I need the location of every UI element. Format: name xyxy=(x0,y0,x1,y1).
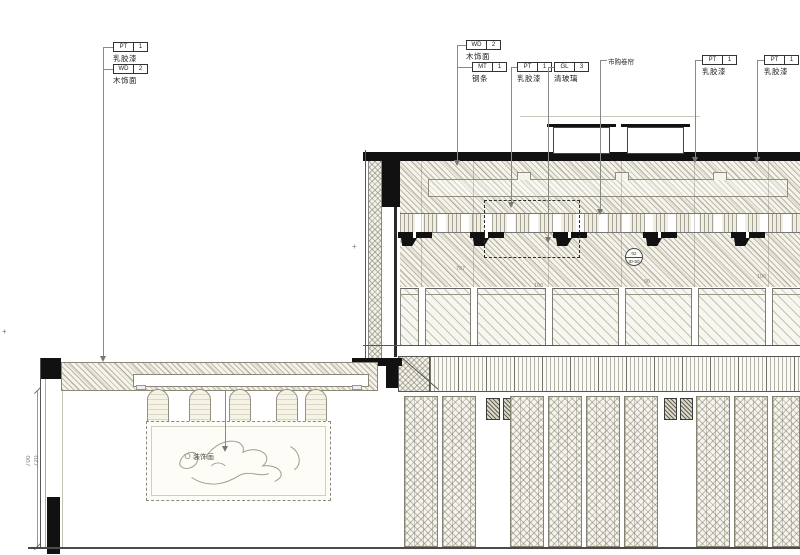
leader-tick xyxy=(757,60,764,61)
downlight-symbol xyxy=(643,232,677,248)
wall-section-strip xyxy=(368,161,382,360)
detail-dashed-box xyxy=(484,200,580,258)
window-mullion xyxy=(470,288,478,345)
screen-gap-box xyxy=(664,398,677,420)
leader-line-right-1 xyxy=(695,60,696,160)
elevation-drawing-canvas: 02 ID-50 xyxy=(0,0,800,555)
corner-mullion-line xyxy=(394,207,397,357)
leader-tick xyxy=(695,60,702,61)
leader-arrow xyxy=(454,160,460,166)
leader-arrow xyxy=(597,209,603,215)
leader-arrow xyxy=(100,356,106,362)
pendant-lamp xyxy=(276,389,298,425)
roof-curb xyxy=(627,127,684,154)
leader-tick xyxy=(600,60,607,61)
callout-pt1-right: PT1 乳胶漆 xyxy=(702,55,737,77)
level-mark-center: + xyxy=(352,243,357,251)
screen-panel xyxy=(548,396,582,547)
screen-gap-box xyxy=(486,398,500,420)
detail-circle-marker: 02 ID-50 xyxy=(625,248,643,266)
leader-line-left-group xyxy=(103,47,104,359)
shelf-end-bracket xyxy=(352,385,362,390)
callout-pt1-right-2: PT1 乳胶漆 xyxy=(764,55,799,77)
window-mullion xyxy=(765,288,773,345)
finish-name: 乳胶漆 xyxy=(702,66,737,77)
artwork-panel xyxy=(146,421,331,501)
recess-notch xyxy=(713,172,727,180)
leader-tick xyxy=(103,47,113,48)
screen-panel xyxy=(442,396,476,547)
mullion-axis-line xyxy=(473,161,474,287)
inline-dimension: 100 xyxy=(534,283,543,289)
leader-tick xyxy=(457,45,466,46)
finish-number: 1 xyxy=(493,63,506,71)
section-column-black xyxy=(382,161,400,207)
artwork-inner-frame xyxy=(151,426,326,496)
finish-number: 1 xyxy=(723,56,736,64)
dimension-text-vertical: 720 xyxy=(34,455,40,467)
building-left-edge-line xyxy=(365,150,366,360)
inline-dimension: 787 xyxy=(456,266,465,272)
finish-name: 钢条 xyxy=(472,73,507,84)
pendant-lamp xyxy=(189,389,211,425)
screen-panel xyxy=(696,396,730,547)
recess-notch xyxy=(517,172,531,180)
shelf-end-bracket xyxy=(136,385,146,390)
finish-code: PT xyxy=(765,56,785,64)
callout-wd2-left: WD2 木饰面 xyxy=(113,64,148,86)
pendant-lamp xyxy=(229,389,251,425)
roof-faint-line xyxy=(520,116,700,117)
dimension-text-vertical: 700 xyxy=(26,455,32,467)
inline-dimension: 90 xyxy=(644,279,650,285)
detail-sheet: ID-50 xyxy=(626,258,642,266)
downlight-slit xyxy=(658,232,661,238)
baluster-posts-band xyxy=(400,213,800,233)
level-mark-left: + xyxy=(2,328,7,336)
dimension-line xyxy=(37,391,38,547)
detail-number: 02 xyxy=(626,249,642,258)
finish-code: MT xyxy=(473,63,493,71)
finish-code: PT xyxy=(114,43,134,51)
recess-notch xyxy=(615,172,629,180)
window-mullion xyxy=(618,288,626,345)
finish-code: PT xyxy=(518,63,538,71)
finish-number: 1 xyxy=(785,56,798,64)
window-head-line xyxy=(400,294,800,295)
leader-arrow xyxy=(692,157,698,163)
leader-line-mid-wd xyxy=(457,45,458,163)
leader-tick xyxy=(103,69,113,70)
finish-number: 1 xyxy=(134,43,147,51)
finish-name: 乳胶漆 xyxy=(517,73,552,84)
finish-name: 乳胶漆 xyxy=(113,53,148,64)
screen-panel xyxy=(586,396,620,547)
leader-tick xyxy=(457,67,472,68)
junction-stem-black xyxy=(386,366,398,388)
screen-gap-box xyxy=(680,398,693,420)
leader-arrow xyxy=(754,157,760,163)
callout-pt1-left: PT1 乳胶漆 xyxy=(113,42,148,64)
callout-pt1-mid: PT1 乳胶漆 xyxy=(517,62,552,84)
glass-window-band xyxy=(400,288,800,345)
roller-blind-note: 市购卷帘 xyxy=(608,56,634,66)
leader-line-roller xyxy=(600,60,601,212)
finish-code: PT xyxy=(703,56,723,64)
artwork-squiggle-svg xyxy=(152,427,325,495)
finish-name: 木饰面 xyxy=(113,75,148,86)
window-mullion xyxy=(691,288,699,345)
finish-number: 3 xyxy=(575,63,588,71)
roof-curb xyxy=(553,127,610,154)
finish-number: 2 xyxy=(134,65,147,73)
artwork-label: 装饰画 xyxy=(193,452,214,462)
screen-panel xyxy=(772,396,800,547)
finish-code: GL xyxy=(555,63,575,71)
leader-arrow xyxy=(508,202,514,208)
downlight-slit xyxy=(413,232,416,238)
light-cove-shelf xyxy=(133,374,369,387)
finish-name: 木饰面 xyxy=(466,51,501,62)
finish-code: WD xyxy=(114,65,134,73)
callout-mt1-mid: MT1 钢条 xyxy=(472,62,507,84)
pendant-lamp xyxy=(305,389,327,425)
mullion-axis-line xyxy=(621,161,622,287)
screen-panel xyxy=(624,396,658,547)
downlight-foot xyxy=(646,238,662,246)
leader-arrow xyxy=(545,237,551,243)
window-sill-line xyxy=(363,345,800,346)
screen-panel xyxy=(510,396,544,547)
window-mullion xyxy=(418,288,426,345)
mullion-axis-line xyxy=(768,161,769,287)
finish-code: WD xyxy=(467,41,487,49)
floor-line xyxy=(28,547,800,549)
downlight-foot xyxy=(734,238,750,246)
mullion-axis-line xyxy=(694,161,695,287)
leader-line-mid-pt xyxy=(511,67,512,205)
screen-panel xyxy=(404,396,438,547)
downlight-symbol xyxy=(731,232,765,248)
leader-line-right-2 xyxy=(757,60,758,160)
downlight-slit xyxy=(746,232,749,238)
inline-dimension: 100 xyxy=(757,274,766,280)
mullion-axis-line xyxy=(421,161,422,287)
wall-finish-line xyxy=(62,391,63,548)
wall-column-black xyxy=(47,497,60,554)
slat-valance-band xyxy=(430,356,800,392)
window-mullion xyxy=(545,288,553,345)
downlight-foot xyxy=(401,238,417,246)
parapet-end-black xyxy=(40,358,61,379)
callout-wd2-mid: WD2 木饰面 xyxy=(466,40,501,62)
downlight-symbol xyxy=(398,232,432,248)
screen-panel xyxy=(734,396,768,547)
ceiling-recess-outline xyxy=(428,179,788,197)
finish-number: 2 xyxy=(487,41,500,49)
leader-line-mid-gl xyxy=(548,67,549,240)
finish-name: 清玻璃 xyxy=(554,73,589,84)
finish-name: 乳胶漆 xyxy=(764,66,799,77)
pendant-lamp xyxy=(147,389,169,425)
valance-end-block xyxy=(398,356,430,392)
leader-arrow xyxy=(222,446,228,452)
left-wall-inner-line xyxy=(45,379,46,548)
leader-line-artwork xyxy=(225,391,226,447)
callout-gl3-mid: GL3 清玻璃 xyxy=(554,62,589,84)
